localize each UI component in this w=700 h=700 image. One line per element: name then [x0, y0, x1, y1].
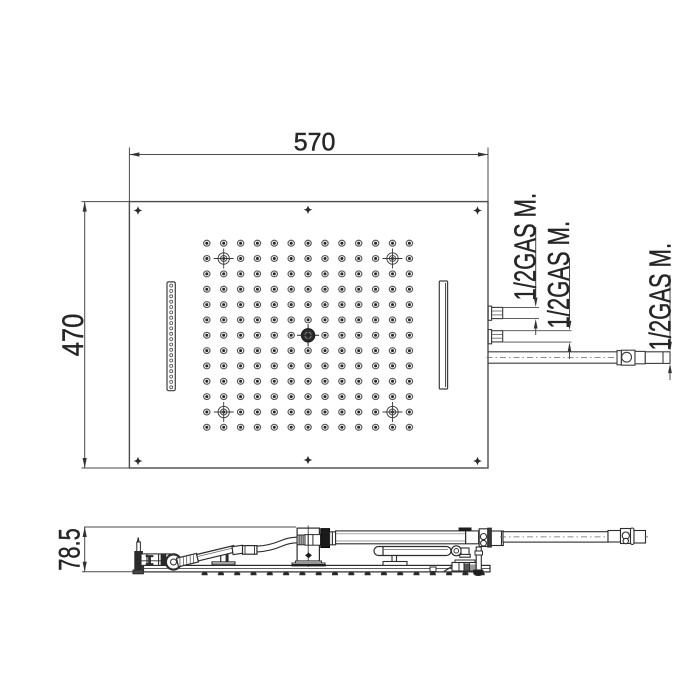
- svg-text:1/2GAS M.: 1/2GAS M.: [542, 221, 577, 329]
- svg-text:570: 570: [294, 128, 336, 156]
- svg-text:1/2GAS M.: 1/2GAS M.: [508, 193, 543, 301]
- svg-text:78.5: 78.5: [52, 528, 86, 571]
- svg-text:1/2GAS M.: 1/2GAS M.: [643, 243, 678, 351]
- svg-text:470: 470: [56, 314, 89, 357]
